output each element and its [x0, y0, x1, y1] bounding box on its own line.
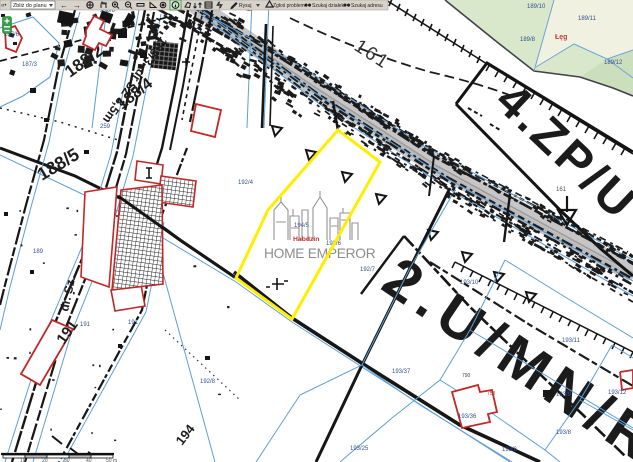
- svg-text:Zbliż do planu: Zbliż do planu: [13, 3, 47, 9]
- svg-text:Zgłoś problem: Zgłoś problem: [273, 3, 305, 9]
- svg-text:753: 753: [487, 391, 496, 397]
- svg-text:191: 191: [80, 322, 91, 328]
- svg-text:Habdzin: Habdzin: [293, 236, 319, 243]
- svg-text:189/12: 189/12: [604, 60, 623, 66]
- svg-text:10: 10: [20, 458, 26, 462]
- svg-text:193/36: 193/36: [458, 414, 477, 420]
- svg-text:193/12: 193/12: [608, 390, 627, 396]
- svg-text:193/25: 193/25: [350, 446, 369, 452]
- svg-text:Szukaj adresu: Szukaj adresu: [351, 3, 383, 9]
- svg-text:193/37: 193/37: [392, 369, 411, 375]
- svg-text:187/3: 187/3: [22, 62, 38, 68]
- svg-text:790: 790: [462, 373, 471, 379]
- svg-text:193/10: 193/10: [460, 280, 479, 286]
- svg-text:189/8: 189/8: [520, 37, 536, 43]
- svg-text:193/11: 193/11: [562, 338, 581, 344]
- svg-text:Rysuj: Rysuj: [239, 3, 252, 9]
- svg-text:191: 191: [128, 320, 139, 326]
- svg-text:Łęg: Łęg: [555, 34, 567, 41]
- svg-text:20: 20: [42, 458, 48, 462]
- svg-text:161: 161: [556, 187, 567, 193]
- svg-text:Szukaj działek: Szukaj działek: [312, 3, 344, 9]
- svg-text:←: ←: [60, 1, 68, 10]
- svg-text:«•: «•: [1, 3, 6, 9]
- svg-text:193/9: 193/9: [556, 392, 572, 398]
- svg-text:192/7: 192/7: [360, 267, 376, 273]
- svg-text:192/8: 192/8: [200, 379, 216, 385]
- svg-text:259: 259: [100, 124, 111, 130]
- svg-text:HOME EMPEROR: HOME EMPEROR: [264, 246, 376, 261]
- svg-text:50 m: 50 m: [106, 458, 117, 462]
- svg-text:→: →: [73, 1, 81, 10]
- svg-text:30: 30: [64, 458, 70, 462]
- svg-text:40: 40: [86, 458, 92, 462]
- svg-text:189: 189: [33, 249, 44, 255]
- svg-text:189/11: 189/11: [578, 16, 597, 22]
- svg-text:193/6: 193/6: [502, 447, 518, 453]
- svg-text:189/10: 189/10: [527, 4, 546, 10]
- svg-text:193/8: 193/8: [556, 430, 572, 436]
- svg-text:192/4: 192/4: [238, 180, 254, 186]
